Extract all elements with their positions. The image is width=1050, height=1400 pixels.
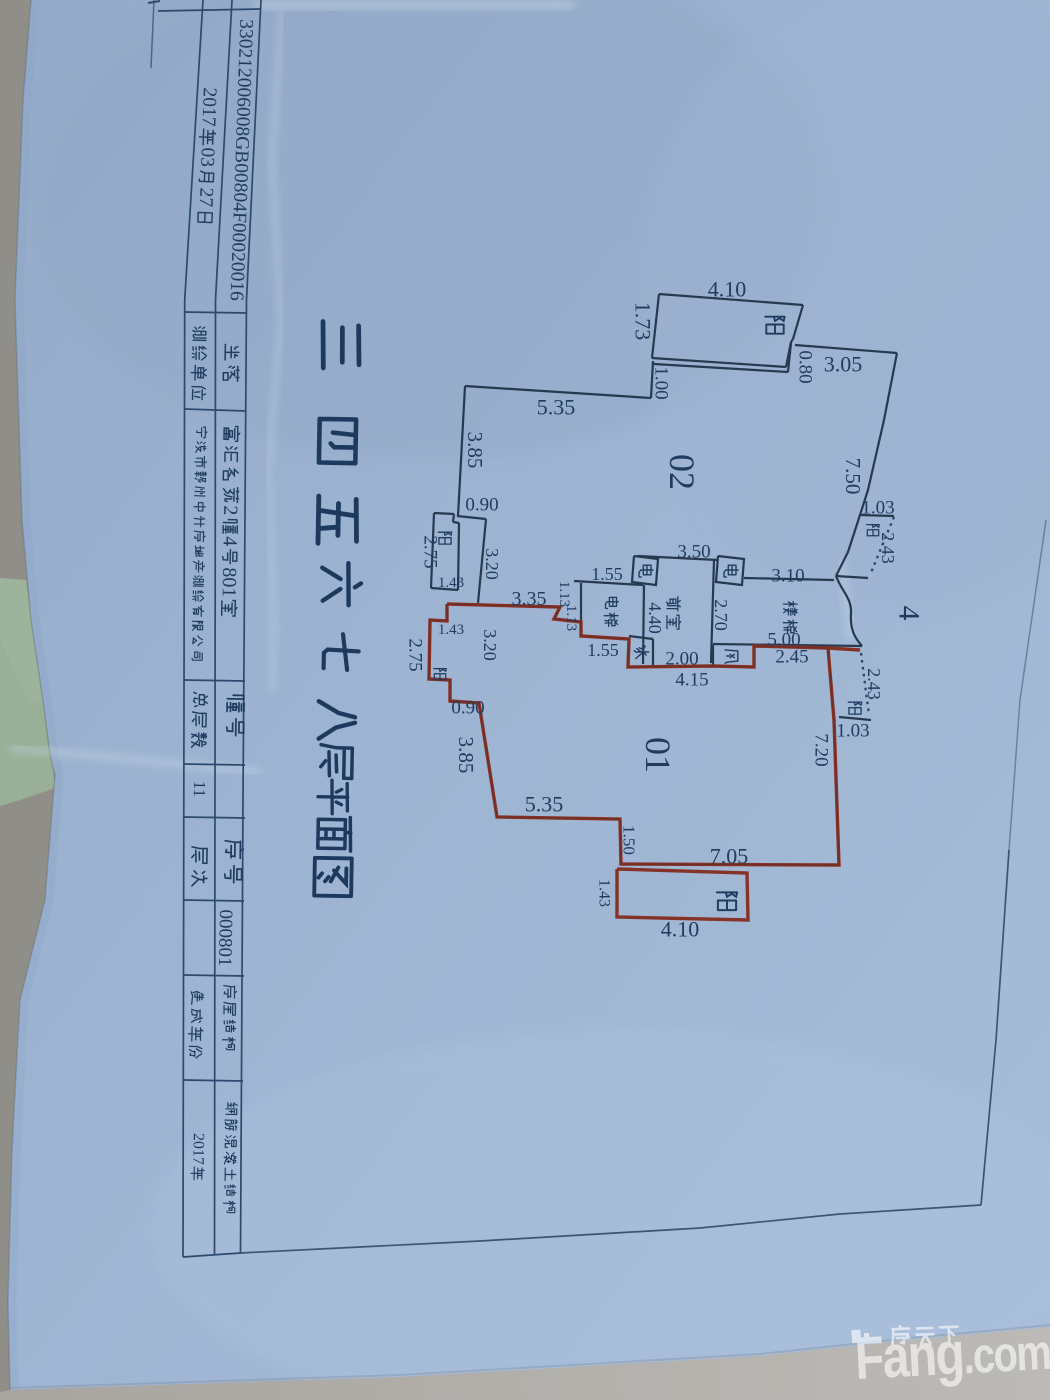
svg-text:3.50: 3.50	[677, 542, 710, 563]
svg-text:3.05: 3.05	[824, 352, 863, 377]
svg-text:4.10: 4.10	[708, 277, 747, 302]
svg-text:1.03: 1.03	[861, 498, 894, 519]
svg-text:3.85: 3.85	[454, 737, 478, 774]
svg-text:2.70: 2.70	[711, 599, 731, 631]
svg-text:5.35: 5.35	[525, 792, 564, 817]
svg-text:1.13: 1.13	[556, 581, 572, 607]
svg-text:0.80: 0.80	[795, 350, 816, 383]
svg-text:7.05: 7.05	[710, 844, 749, 869]
svg-text:7.20: 7.20	[811, 733, 832, 766]
svg-text:2.45: 2.45	[775, 647, 808, 668]
svg-text:4.10: 4.10	[661, 917, 700, 942]
svg-text:5.35: 5.35	[537, 395, 576, 420]
svg-text:1.55: 1.55	[587, 640, 619, 660]
svg-text:1.13: 1.13	[563, 605, 579, 631]
svg-text:02: 02	[662, 454, 702, 490]
svg-text:3.35: 3.35	[512, 588, 547, 610]
svg-text:2.43: 2.43	[864, 668, 884, 700]
svg-text:4.15: 4.15	[675, 670, 708, 691]
svg-text:1.43: 1.43	[596, 879, 613, 907]
svg-text:01: 01	[638, 737, 678, 773]
svg-text:03: 03	[196, 147, 218, 167]
svg-text:4: 4	[893, 606, 926, 621]
svg-text:2017: 2017	[198, 87, 220, 127]
svg-text:4.40: 4.40	[645, 602, 665, 634]
svg-text:27: 27	[195, 187, 217, 207]
svg-text:0.90: 0.90	[465, 495, 498, 516]
svg-text:2: 2	[219, 505, 241, 515]
svg-text:2.00: 2.00	[665, 649, 698, 670]
svg-text:11: 11	[190, 781, 209, 798]
svg-text:3.85: 3.85	[463, 432, 487, 469]
svg-text:801: 801	[218, 567, 241, 597]
svg-text:3.20: 3.20	[482, 548, 502, 580]
svg-text:Fang.com: Fang.com	[853, 1315, 1050, 1392]
svg-text:1.50: 1.50	[620, 825, 639, 855]
svg-text:3.20: 3.20	[480, 629, 500, 661]
svg-text:3.10: 3.10	[771, 566, 804, 587]
svg-text:2.75: 2.75	[405, 638, 426, 671]
svg-text:1.43: 1.43	[438, 575, 464, 591]
svg-text:0.90: 0.90	[451, 698, 484, 719]
svg-text:4: 4	[219, 536, 241, 546]
svg-text:1.00: 1.00	[651, 366, 672, 399]
svg-text:1.55: 1.55	[591, 564, 623, 584]
svg-text:1.73: 1.73	[631, 302, 656, 341]
svg-text:7.50: 7.50	[841, 458, 865, 495]
svg-text:000801: 000801	[214, 909, 236, 966]
svg-text:2.43: 2.43	[878, 532, 898, 564]
svg-text:1.03: 1.03	[836, 721, 869, 742]
svg-text:2.75: 2.75	[420, 535, 441, 568]
svg-text:1.43: 1.43	[438, 622, 464, 638]
svg-text:2017: 2017	[189, 1133, 207, 1165]
